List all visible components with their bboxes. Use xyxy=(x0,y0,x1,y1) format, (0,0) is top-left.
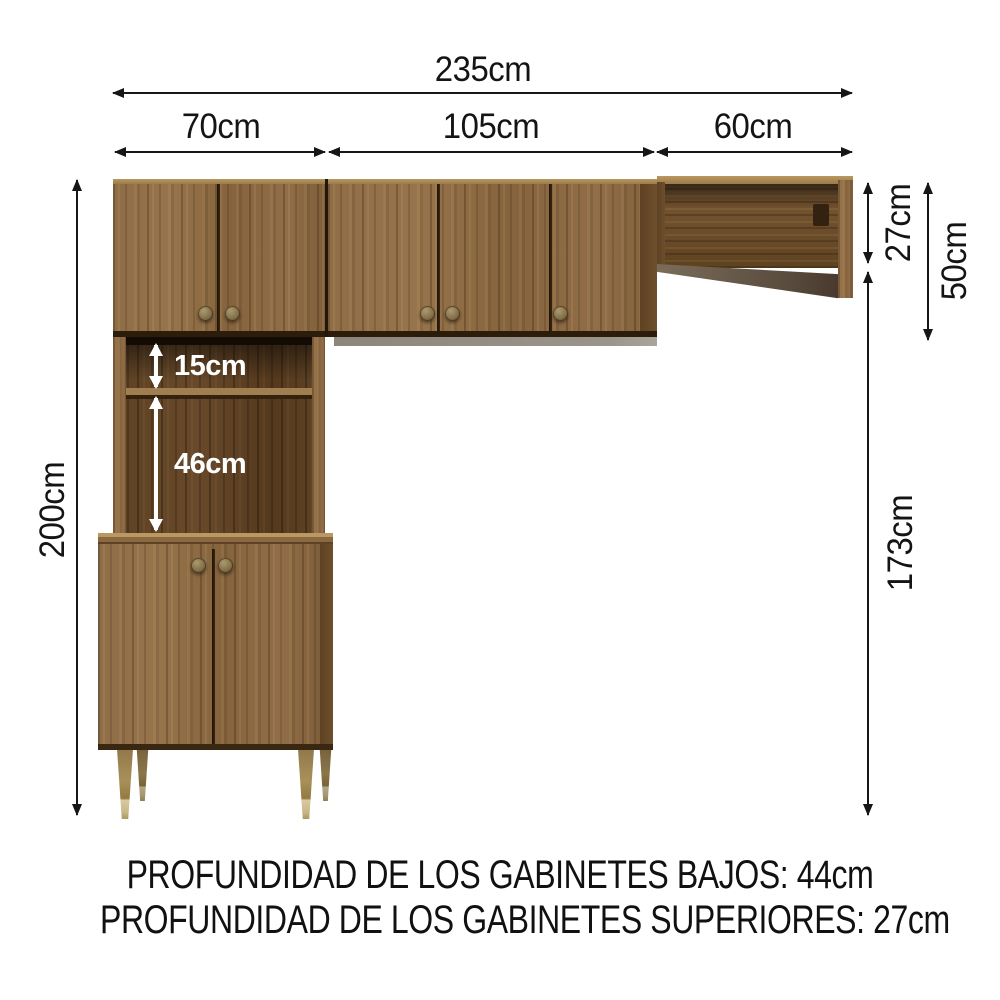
dim-middle-section-label: 105cm xyxy=(443,107,539,147)
cabinet-bottom-edge xyxy=(98,744,333,750)
dim-niche-top-label: 15cm xyxy=(174,350,246,383)
door-knob xyxy=(445,306,460,321)
dim-niche-bottom-arrow xyxy=(154,398,158,530)
cabinet-top-edge xyxy=(328,179,657,184)
door-knob xyxy=(553,306,568,321)
cabinet-leg-back-right xyxy=(319,750,332,801)
depth-notes: PROFUNDIDAD DE LOS GABINETES BAJOS: 44cm… xyxy=(0,853,1000,943)
dim-open-shelf-height-arrow xyxy=(867,183,869,263)
door-knob xyxy=(218,558,233,573)
dim-left-section-label: 70cm xyxy=(182,107,261,147)
dim-left-section-arrow xyxy=(115,151,325,153)
product-dimension-diagram: 235cm 70cm 105cm 60cm 200cm 27cm 50cm 17… xyxy=(0,0,1000,1000)
base-counter-top xyxy=(98,533,333,544)
dim-lower-section-height-label: 173cm xyxy=(881,495,921,591)
dim-middle-section-arrow xyxy=(329,151,654,153)
cabinet-leg-back-left xyxy=(136,750,149,801)
open-wall-shelf xyxy=(657,176,853,302)
shelf-bracket xyxy=(813,204,829,226)
door-knob xyxy=(225,306,240,321)
niche-right-frame xyxy=(312,337,325,533)
open-shelf-interior xyxy=(665,184,838,268)
wall-cabinet xyxy=(328,179,657,337)
depth-note-line-1: PROFUNDIDAD DE LOS GABINETES BAJOS: 44cm xyxy=(100,853,900,898)
dim-niche-top-arrow xyxy=(154,345,158,387)
shelf-top-panel xyxy=(657,176,853,184)
shelf-right-panel xyxy=(838,180,853,298)
shelf-underside xyxy=(657,264,838,300)
base-side-panel xyxy=(320,544,333,744)
cabinet-shadow xyxy=(334,337,657,346)
dim-niche-bottom-label: 46cm xyxy=(174,448,246,481)
dim-total-width-arrow xyxy=(113,92,852,94)
dim-total-height-label: 200cm xyxy=(33,462,73,558)
door-knob xyxy=(420,306,435,321)
dim-total-width-label: 235cm xyxy=(435,50,531,90)
cabinet-leg-front-right xyxy=(297,750,315,819)
door-seam xyxy=(437,184,440,331)
door-seam xyxy=(549,184,552,331)
door-seam xyxy=(217,184,220,331)
base-cabinet xyxy=(98,533,333,750)
door-seam xyxy=(212,549,215,744)
door-knob xyxy=(191,558,206,573)
dim-right-section-arrow xyxy=(657,151,852,153)
dim-right-section-label: 60cm xyxy=(714,107,793,147)
dim-open-shelf-height-label: 27cm xyxy=(879,184,919,263)
dim-total-height-arrow xyxy=(76,180,78,815)
cabinet-leg-front-left xyxy=(116,750,134,819)
door-knob xyxy=(198,306,213,321)
dim-upper-cabinet-height-arrow xyxy=(927,183,929,340)
wall-cabinet-end-panel xyxy=(640,184,657,331)
dim-upper-cabinet-height-label: 50cm xyxy=(935,222,975,301)
base-front xyxy=(98,544,320,750)
dim-lower-section-height-arrow xyxy=(867,272,869,815)
niche-left-frame xyxy=(113,337,126,533)
shelf-left-wall xyxy=(657,182,665,268)
tall-cabinet-upper-doors xyxy=(113,179,325,337)
depth-note-line-2: PROFUNDIDAD DE LOS GABINETES SUPERIORES:… xyxy=(100,898,900,943)
